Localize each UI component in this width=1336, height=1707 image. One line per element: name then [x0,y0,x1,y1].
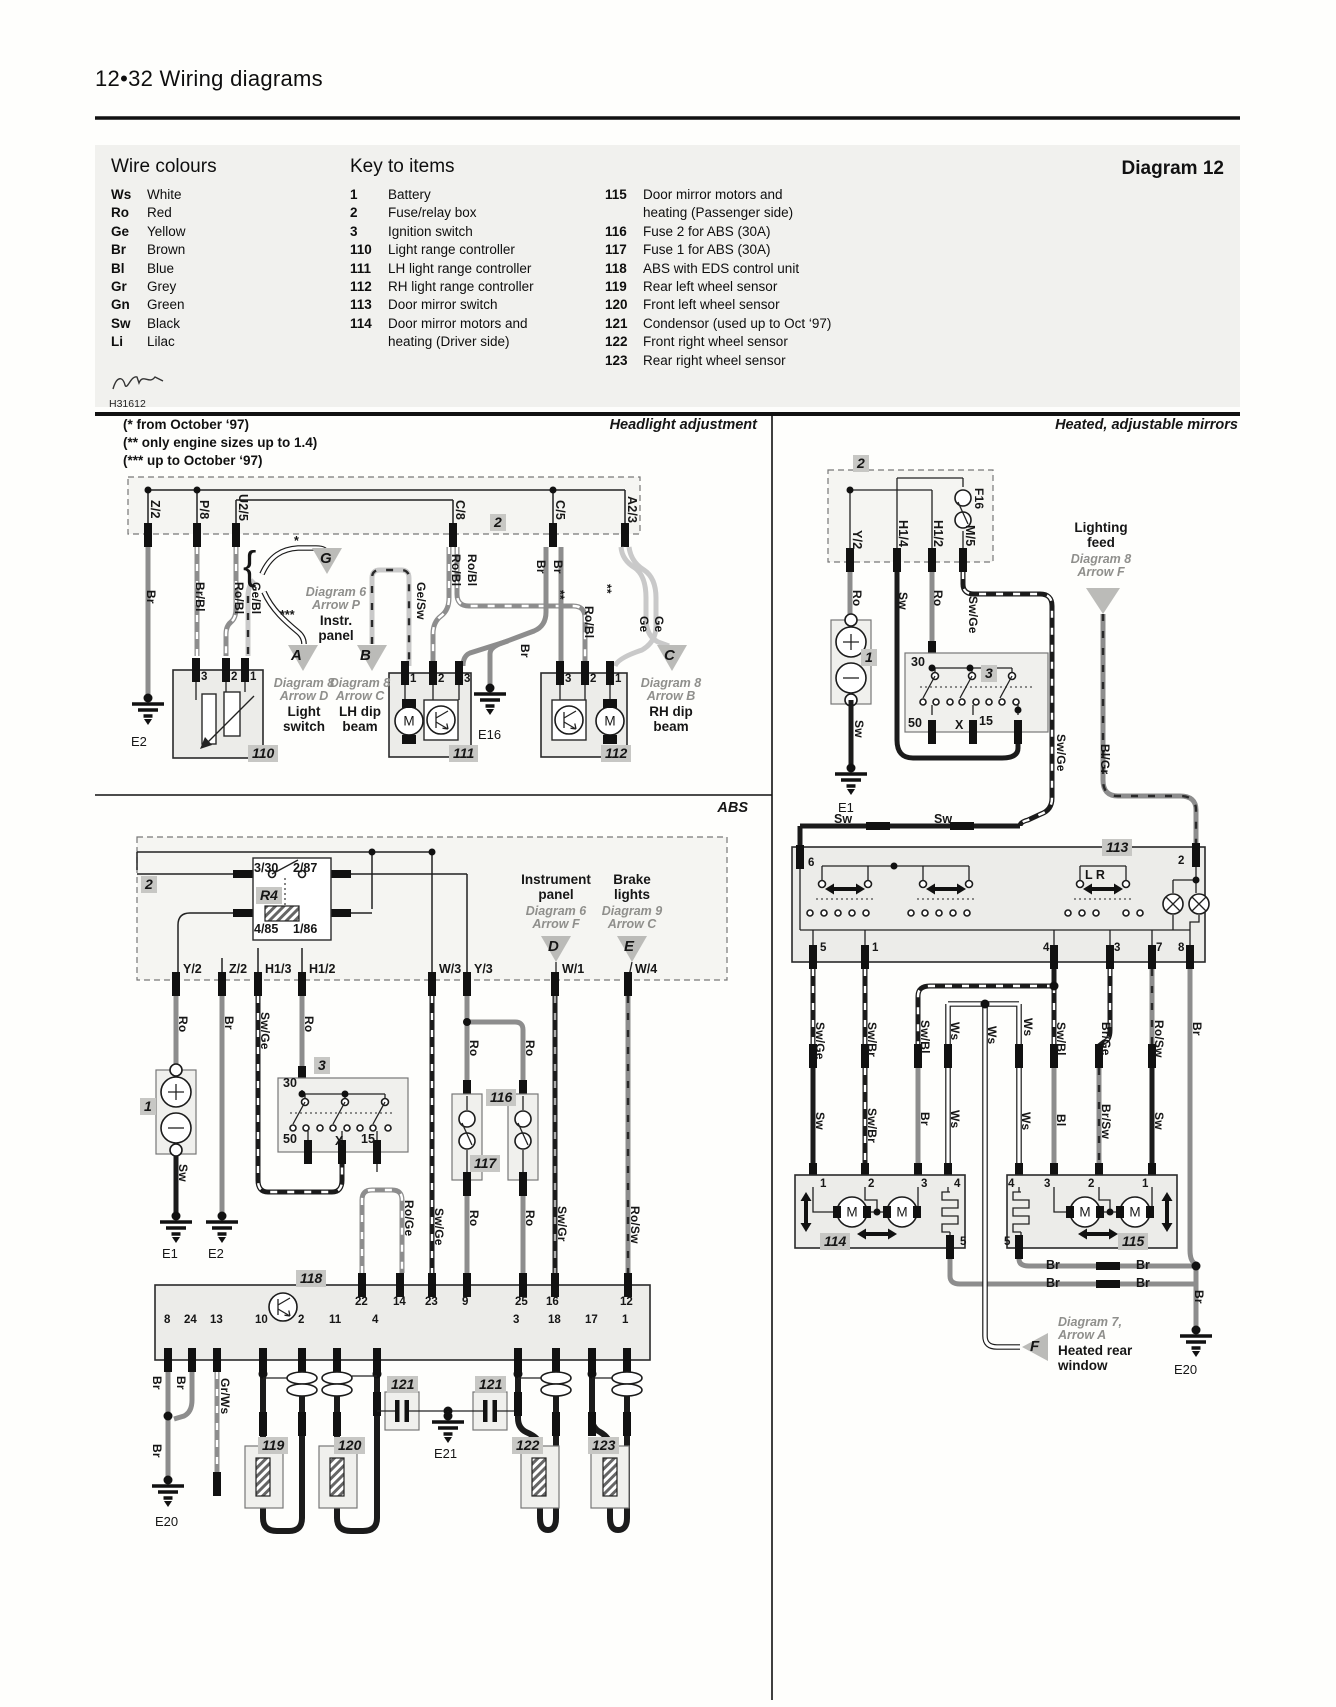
legend-row: 119Rear left wheel sensor [605,278,965,296]
component-tag: 2 [490,514,506,531]
wire-label: Br [518,644,532,658]
terminal-label: 15 [979,714,993,728]
pin-number: 8 [164,1314,170,1326]
component-tag: 121 [475,1376,506,1393]
terminal-label: W/1 [562,962,584,976]
ground-label: E2 [131,734,147,749]
ground-label: E20 [1174,1362,1197,1377]
component-113-door-mirror-switch [792,843,1209,969]
diagram-ref-label: Diagram 8 [330,676,390,690]
motor-letter: M [896,1205,907,1220]
wire-label: Ws [1021,1018,1035,1036]
wire-label: ** [600,584,614,594]
connector-label: C/8 [453,500,467,520]
wire-label: Sw/Gr [555,1206,569,1242]
section-title: ABS [717,800,748,816]
destination-label: window [1058,1358,1108,1373]
wire-label: Ge [652,616,666,632]
destination-label: Light [288,704,321,719]
pin-number: 16 [546,1296,559,1308]
wire-label: Br [1192,1290,1206,1304]
destination-label: RH dip [649,704,693,719]
abs-diagram [137,837,727,1531]
connector-label: U2/5 [236,494,250,521]
condensor-121-left [377,1392,448,1430]
destination-label: panel [318,628,353,643]
pin-number: 3 [1044,1178,1050,1190]
pin-number: 1 [410,673,416,685]
manual-page: 12•32 Wiring diagrams [0,0,1336,1707]
ground-label: E1 [162,1246,178,1261]
wire-label: Br/Ge [1099,1022,1113,1056]
component-tag: 123 [588,1437,619,1454]
pin-number: 6 [808,857,814,869]
wire-label: Ro/Sw [628,1206,642,1244]
pin-number: 5 [1004,1236,1010,1248]
legend-row: GrGrey [111,278,341,296]
diagram-ref-label: Arrow F [532,917,579,931]
component-tag: 117 [470,1155,500,1172]
wire-label: Sw [1152,1112,1166,1130]
terminal-label: Br [1136,1258,1150,1272]
ground-E20-mirrors [1180,1326,1212,1358]
wire-label: Sw/Br [865,1108,879,1143]
arrow-letter: D [548,938,559,955]
wire-label: Bl/Gr [1098,744,1112,774]
wire-label: Sw [813,1112,827,1130]
component-tag: 1 [861,649,877,666]
destination-label: Instrument [521,872,591,887]
diagram-ref-label: Arrow B [647,689,696,703]
pin-number: 4 [372,1314,378,1326]
destination-label: lights [614,887,650,902]
wire-label: Gr/Ws [218,1378,232,1414]
pin-number: 1 [615,673,621,685]
pin-number: 2 [868,1178,874,1190]
diagram-ref-label: Arrow D [280,689,329,703]
wire-label: Ro [523,1210,537,1226]
terminal-label: Y/3 [474,962,493,976]
wire-label: Sw [176,1164,190,1182]
wire-label: Sw [896,592,910,610]
terminal-label: Br [1046,1276,1060,1290]
wire-label: Ge [637,616,651,632]
pin-number: 2 [298,1314,304,1326]
section-title: Heated, adjustable mirrors [1055,417,1238,433]
arrow-letter: A [291,647,302,664]
ground-label: E2 [208,1246,224,1261]
ground-E2b [206,1212,238,1244]
component-tag: 120 [334,1437,365,1454]
pin-number: 14 [393,1296,406,1308]
wire-label: Br/Bl [193,582,207,612]
ground-E1-mirrors [835,764,867,796]
component-111-lh-light-range-controller [389,661,471,757]
condensor-121-right [448,1392,518,1430]
arrow-letter: F [1030,1338,1039,1355]
pin-number: 3 [565,673,571,685]
ground-E1 [160,1212,192,1244]
destination-label: beam [342,719,377,734]
wire-label: Ro [176,1016,190,1032]
diagram-ref-label: Arrow A [1058,1328,1106,1342]
wire-label: Br [150,1376,164,1390]
connector-label: A2/3 [625,496,639,523]
terminal-label: H1/2 [309,962,335,976]
wire-colours-title: Wire colours [111,156,341,178]
destination-label: Lighting [1074,520,1127,535]
legend-row: 2Fuse/relay box [350,204,605,222]
diagram-ref-label: Diagram 8 [274,676,334,690]
wire-label: Ro [931,590,945,606]
pin-number: 23 [425,1296,438,1308]
pin-number: 2 [590,673,596,685]
wire-label: Br/Sw [1099,1104,1113,1139]
legend-row: 116Fuse 2 for ABS (30A) [605,223,965,241]
signature-squiggle [109,371,179,395]
wire-label: Br [144,590,158,604]
key-to-items-title: Key to items [350,156,1220,178]
legend-row: RoRed [111,204,341,222]
pin-number: 3 [201,671,207,683]
wire-label: Sw/Ge [432,1208,446,1246]
legend-row: 1Battery [350,186,605,204]
pin-number: 17 [585,1314,598,1326]
pin-number: 2 [1178,855,1184,867]
pin-number: 1 [872,942,878,954]
pin-number: 8 [1178,942,1184,954]
pin-number: 24 [184,1314,197,1326]
pin-number: 22 [355,1296,368,1308]
pin-number: 12 [620,1296,633,1308]
wire-label: Sw/Ge [258,1012,272,1050]
diagram-ref-label: Diagram 9 [602,904,662,918]
pin-number: 1 [1142,1178,1148,1190]
terminal-label: W/3 [439,962,461,976]
ground-E2 [132,694,164,726]
legend-row: 110Light range controller [350,241,605,259]
wire-label: Br [551,560,565,574]
destination-label: Brake [613,872,651,887]
component-tag: 2 [853,455,869,472]
diagram-note: (* from October ‘97) [123,417,249,432]
wire-label: Sw/Ge [966,596,980,634]
wire-label: Sw/Ge [1054,734,1068,772]
terminal-label: L R [1085,868,1105,882]
ground-E21 [432,1407,464,1444]
wire-colours-legend: Wire colours WsWhiteRoRedGeYellowBrBrown… [111,156,341,352]
terminal-label: 30 [283,1076,297,1090]
legend-row: 117Fuse 1 for ABS (30A) [605,241,965,259]
wire-label: Br [1190,1022,1204,1036]
pin-number: 4 [1008,1178,1014,1190]
ground-label: E16 [478,727,501,742]
wire-label: Br [222,1016,236,1030]
legend-row: 3Ignition switch [350,223,605,241]
wire-label: Ro [467,1040,481,1056]
pin-number: 3 [513,1314,519,1326]
wire-label: Sw/Bl [918,1020,932,1054]
diagram-ref-label: Diagram 7, [1058,1315,1122,1329]
key-to-items-legend: Key to items 1Battery2Fuse/relay box3Ign… [350,156,1220,370]
wire-label: F16 [972,488,986,509]
component-118-abs-control-unit [155,1273,650,1372]
motor-letter: M [846,1205,857,1220]
legend-row: 112RH light range controller [350,278,605,296]
terminal-label: X [335,1134,343,1148]
legend-row: 120Front left wheel sensor [605,296,965,314]
terminal-label: Z/2 [229,962,247,976]
diagram-note: (** only engine sizes up to 1.4) [123,435,317,450]
terminal-label: Br [1046,1258,1060,1272]
pin-number: 1 [250,671,256,683]
terminal-label: 2/87 [293,861,317,875]
wire-label: Br [174,1376,188,1390]
legend-panel: Wire colours WsWhiteRoRedGeYellowBrBrown… [95,145,1240,407]
terminal-label: 50 [908,716,922,730]
wire-label: Br [150,1444,164,1458]
legend-row: 118ABS with EDS control unit [605,260,965,278]
legend-row: GeYellow [111,223,341,241]
ground-E16 [474,684,506,716]
terminal-label: 15 [361,1132,375,1146]
component-tag: 121 [387,1376,418,1393]
battery-1 [156,1064,196,1156]
arrow-letter: C [664,647,675,664]
terminal-label: 3/30 [254,861,278,875]
wire-label: ** [553,590,567,600]
wire-label: Ws [948,1110,962,1128]
component-tag: 111 [449,745,478,762]
pin-number: 2 [1088,1178,1094,1190]
wire-label: Ro/Sw [1152,1020,1166,1058]
component-tag: 114 [820,1233,850,1250]
terminal-label: H1/3 [265,962,291,976]
diagram-ref-label: Diagram 8 [641,676,701,690]
pin-number: 5 [960,1236,966,1248]
legend-row: GnGreen [111,296,341,314]
pin-number: 13 [210,1314,223,1326]
connector-label: Y/2 [850,530,864,549]
component-tag: 3 [981,665,997,682]
wire-label: Ws [1019,1112,1033,1130]
section-title: Headlight adjustment [610,417,757,433]
pin-number: 18 [548,1314,561,1326]
terminal-label: * [294,534,299,548]
wire-label: Ws [948,1022,962,1040]
connector-label: P/8 [197,500,211,519]
motor-letter: M [1129,1205,1140,1220]
pin-number: 1 [820,1178,826,1190]
diagram-number: Diagram 12 [1122,158,1224,180]
key-items-left-column: 1Battery2Fuse/relay box3Ignition switch1… [350,186,605,370]
connector-label: H1/4 [896,520,910,547]
signature-block: H31612 [109,371,179,410]
pin-number: 1 [622,1314,628,1326]
wire-label: Bl [1054,1114,1068,1126]
motor-letter: M [403,714,414,729]
component-tag: 112 [601,745,631,762]
lighting-feed-arrow [1086,588,1120,614]
connector-label: H1/2 [931,520,945,547]
component-tag: 1 [140,1098,156,1115]
pin-number: 4 [1043,942,1049,954]
pin-number: 5 [820,942,826,954]
connector-label: C/5 [553,500,567,520]
legend-row: BrBrown [111,241,341,259]
legend-row: 111LH light range controller [350,260,605,278]
wire-colours-list: WsWhiteRoRedGeYellowBrBrownBlBlueGrGreyG… [111,186,341,352]
arrow-letter: B [360,647,371,664]
terminal-label: *** [280,608,295,622]
destination-label: beam [653,719,688,734]
pin-number: 3 [921,1178,927,1190]
fuse-117 [452,1080,482,1196]
diagram-ref-label: Arrow F [1077,565,1124,579]
pin-number: 10 [255,1314,268,1326]
legend-row: 122Front right wheel sensor [605,333,965,351]
wire-label: Br [918,1112,932,1126]
pin-number: 3 [464,673,470,685]
reference-code: H31612 [109,398,179,410]
diagram-ref-label: Diagram 6 [526,904,586,918]
wire-label: Ro/Ge [402,1200,416,1236]
destination-label: panel [538,887,573,902]
wire-label: Sw/Ge [813,1022,827,1060]
terminal-label: 50 [283,1132,297,1146]
legend-row: 113Door mirror switch [350,296,605,314]
wire-label: Br [534,560,548,574]
wire-label: Ro [302,1016,316,1032]
ignition-switch-3-mirrors [905,641,1048,744]
diagram-ref-label: Arrow P [312,598,360,612]
wire-label: Ro [467,1210,481,1226]
connector-label: M/5 [963,525,977,546]
key-items-right-column: 115Door mirror motors andheating (Passen… [605,186,965,370]
legend-row-continued: heating (Passenger side) [605,204,965,222]
pin-number: 9 [462,1296,468,1308]
wire-label: Sw [852,720,866,738]
component-tag: R4 [256,887,282,904]
pin-number: 2 [231,671,237,683]
destination-label: Instr. [320,613,352,628]
connector-label: Z/2 [148,500,162,519]
legend-row: SwBlack [111,315,341,333]
legend-row-continued: heating (Driver side) [350,333,605,351]
terminal-label: 1/86 [293,922,317,936]
component-tag: 3 [314,1057,330,1074]
motor-letter: M [1079,1205,1090,1220]
wire-label: Ro/Bl [449,554,463,586]
terminal-label: Sw [834,812,852,826]
component-tag: 115 [1118,1233,1148,1250]
pin-number: 7 [1156,942,1162,954]
wire-label: Ro/Bl [582,606,596,638]
brace-glyph: { [243,544,256,589]
ground-E20 [152,1476,184,1508]
legend-row: 123Rear right wheel sensor [605,352,965,370]
wire-label: Ro/Bl [465,554,479,586]
pin-number: 3 [1114,942,1120,954]
component-tag: 113 [1102,839,1132,856]
diagram-ref-label: Arrow C [336,689,385,703]
terminal-label: 30 [911,655,925,669]
ground-label: E21 [434,1446,457,1461]
destination-label: Heated rear [1058,1343,1132,1358]
wire-label: Ro [523,1040,537,1056]
component-tag: 116 [486,1089,516,1106]
wire-label: Sw/Bl [1054,1022,1068,1056]
wire-label: Ge/Sw [414,582,428,620]
pin-number: 25 [515,1296,528,1308]
wire-label: Ro [850,590,864,606]
component-tag: 122 [512,1437,543,1454]
ignition-switch-3 [278,1066,408,1172]
pin-number: 2 [438,673,444,685]
arrow-letter: E [624,938,634,955]
terminal-label: X [955,718,963,732]
arrow-letter: G [320,550,332,567]
terminal-label: W/4 [635,962,657,976]
pin-number: 11 [329,1314,341,1326]
wire-label: Sw/Br [865,1022,879,1057]
destination-label: switch [283,719,325,734]
legend-row: 121Condensor (used up to Oct ‘97) [605,315,965,333]
diagram-note: (*** up to October ‘97) [123,453,263,468]
motor-letter: M [604,714,615,729]
wire-label: Ws [985,1026,999,1044]
destination-label: feed [1087,535,1115,550]
component-tag: 119 [258,1437,288,1454]
legend-row: WsWhite [111,186,341,204]
ground-label: E20 [155,1514,178,1529]
legend-row: 114Door mirror motors and [350,315,605,333]
legend-row: 115Door mirror motors and [605,186,965,204]
component-tag: 118 [296,1270,326,1287]
legend-row: LiLilac [111,333,341,351]
destination-label: LH dip [339,704,381,719]
diagram-ref-label: Diagram 8 [1071,552,1131,566]
legend-row: BlBlue [111,260,341,278]
pin-number: 4 [954,1178,960,1190]
terminal-label: 4/85 [254,922,278,936]
diagram-ref-label: Diagram 6 [306,585,366,599]
component-tag: 2 [141,876,157,893]
terminal-label: Br [1136,1276,1150,1290]
terminal-label: Y/2 [183,962,202,976]
component-tag: 110 [248,745,278,762]
diagram-ref-label: Arrow C [608,917,657,931]
terminal-label: Sw [934,812,952,826]
